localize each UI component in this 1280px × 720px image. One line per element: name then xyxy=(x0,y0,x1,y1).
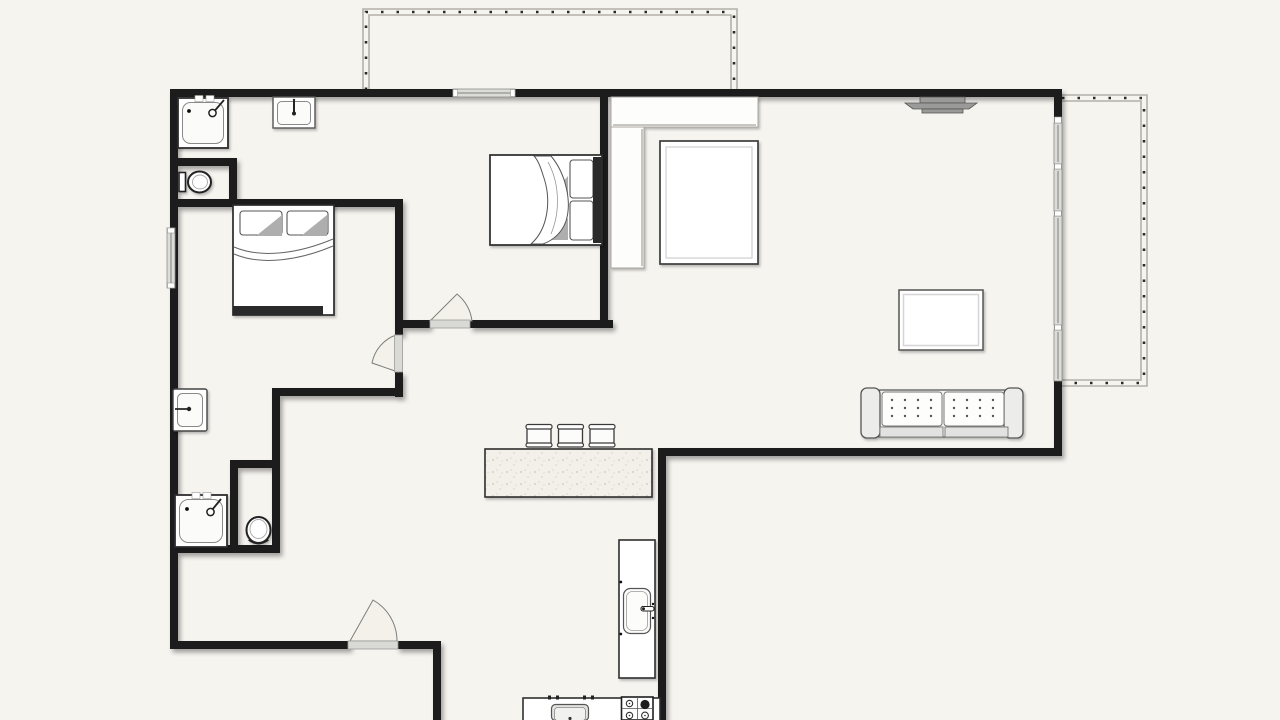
bar-stools xyxy=(526,425,615,448)
wall-kitchen-right xyxy=(658,448,666,720)
bed-footboard xyxy=(233,306,323,315)
wall-bedroom1-right-a xyxy=(395,203,403,335)
bar-stool xyxy=(589,425,615,448)
bed-headboard xyxy=(593,157,602,243)
sofa xyxy=(861,388,1023,438)
wall-bath1-mid xyxy=(170,158,237,166)
sofa-cushion xyxy=(882,392,942,426)
gas-stove xyxy=(622,697,654,720)
kitchen-counter xyxy=(523,696,660,720)
pillow xyxy=(570,160,593,198)
wall-hall-side xyxy=(272,388,280,553)
window-left-wall xyxy=(167,228,175,288)
sofa-seat-front xyxy=(880,427,943,437)
toilet-2 xyxy=(247,517,271,544)
wall-bottom-left-a xyxy=(170,641,350,649)
toilet-1 xyxy=(179,172,211,193)
table-living xyxy=(660,141,758,264)
shower-head-icon xyxy=(207,508,214,515)
bed-left-bedroom xyxy=(233,205,334,315)
wall-sink-2 xyxy=(173,389,207,431)
wall-bath1-side xyxy=(229,158,237,207)
tall-fridge-unit xyxy=(619,540,655,678)
coffee-table xyxy=(899,290,983,350)
wall-left xyxy=(170,89,178,649)
wall-entry-side xyxy=(433,649,441,720)
kitchen-island xyxy=(485,449,652,497)
drain-icon xyxy=(187,109,191,113)
window-right-wall-group xyxy=(1054,117,1062,381)
wall-living-bottom xyxy=(658,448,1062,456)
floor-plan-svg xyxy=(0,0,1280,720)
drain-icon xyxy=(185,507,189,511)
sofa-seat-front xyxy=(945,427,1008,437)
vanity-sink-1 xyxy=(273,97,315,128)
counter-sink xyxy=(552,705,589,720)
floor-plan-page xyxy=(0,0,1280,720)
burner-icon xyxy=(640,700,649,709)
shower-head-icon xyxy=(209,109,216,116)
wall-top xyxy=(170,89,1062,97)
sofa-armrest xyxy=(861,388,880,438)
wall-bottom-left-b xyxy=(397,641,441,649)
bed-center-bedroom xyxy=(490,155,602,245)
bar-stool xyxy=(558,425,584,448)
pillow xyxy=(570,201,593,240)
wall-bedroom2-bottom-b xyxy=(470,320,613,328)
bar-stool xyxy=(526,425,552,448)
wall-hall-top xyxy=(275,388,403,396)
shower-2 xyxy=(175,493,227,548)
window-top-wall xyxy=(453,89,515,97)
sofa-cushion xyxy=(944,392,1004,426)
wall-wc2-left xyxy=(230,460,238,553)
shower-1 xyxy=(178,96,228,149)
